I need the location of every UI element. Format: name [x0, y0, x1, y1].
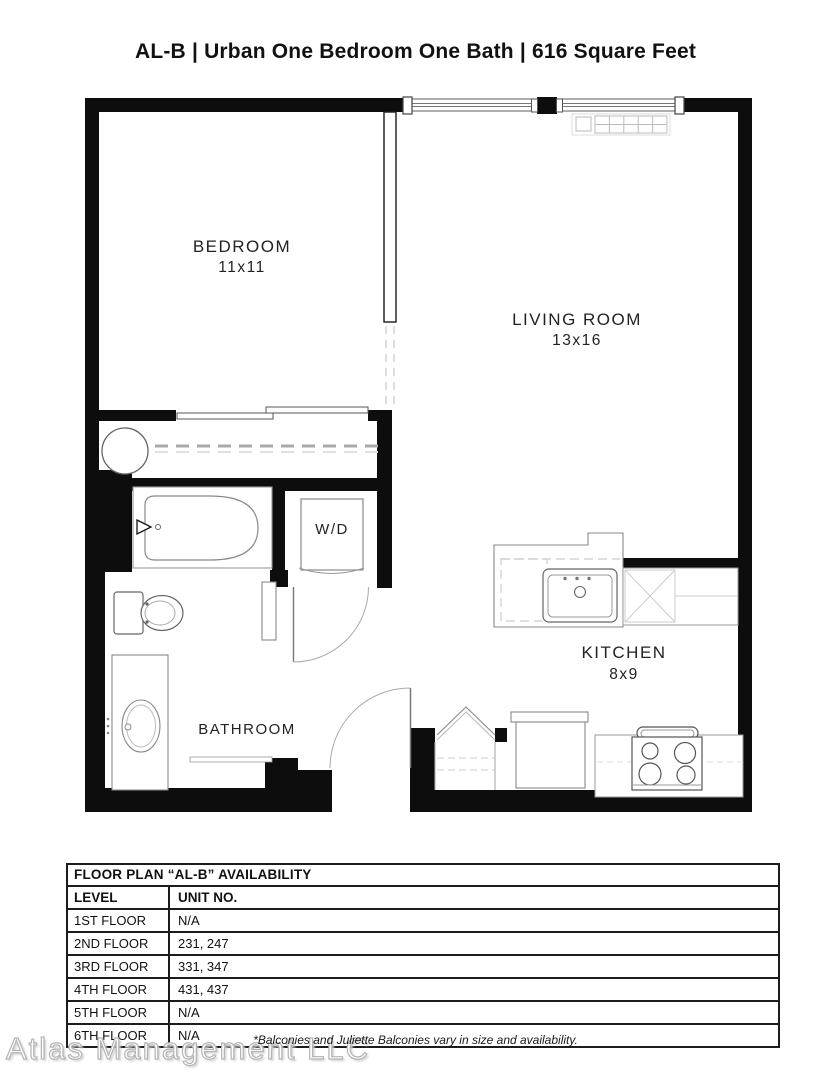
- units-cell: 231, 247: [170, 933, 778, 954]
- washer-dryer: W/D: [294, 499, 369, 662]
- door-swing-arc: [294, 587, 369, 662]
- living-room-label: LIVING ROOM: [512, 310, 642, 329]
- units-cell: 431, 437: [170, 979, 778, 1000]
- floor-plan-page: AL-B | Urban One Bedroom One Bath | 616 …: [0, 0, 831, 1080]
- table-row: 3RD FLOOR 331, 347: [68, 956, 778, 979]
- kitchen-dims: 8x9: [609, 666, 639, 683]
- level-cell: 1ST FLOOR: [68, 910, 170, 931]
- table-row: 2ND FLOOR 231, 247: [68, 933, 778, 956]
- washer-dryer-label: W/D: [315, 521, 349, 538]
- sliding-door: [266, 407, 368, 413]
- door-swing-arc: [330, 688, 410, 768]
- bedroom-partition: [384, 112, 396, 408]
- bathtub-icon: [133, 487, 272, 568]
- baseboard-heater-icon: [572, 114, 670, 135]
- refrigerator-icon: [511, 712, 588, 788]
- column-header-unit-no: UNIT NO.: [170, 887, 778, 908]
- column-header-level: LEVEL: [68, 887, 170, 908]
- stove-icon: [632, 727, 702, 790]
- bathroom-label: BATHROOM: [198, 721, 296, 738]
- table-row: 4TH FLOOR 431, 437: [68, 979, 778, 1002]
- bathroom-fixtures: [107, 582, 276, 790]
- window: [403, 97, 684, 114]
- availability-table: FLOOR PLAN “AL-B” AVAILABILITY LEVEL UNI…: [66, 863, 780, 1048]
- water-heater-icon: [102, 428, 148, 474]
- walls: [85, 98, 752, 812]
- bathroom-sink-icon: [107, 655, 168, 790]
- units-cell: N/A: [170, 1002, 778, 1023]
- level-cell: 4TH FLOOR: [68, 979, 170, 1000]
- level-cell: 5TH FLOOR: [68, 1002, 170, 1023]
- threshold: [190, 757, 272, 762]
- toilet-icon: [114, 592, 183, 634]
- balcony-footnote: *Balconies and Juliette Balconies vary i…: [0, 1033, 831, 1047]
- level-cell: 2ND FLOOR: [68, 933, 170, 954]
- kitchen-sink-icon: [543, 569, 617, 622]
- window-mullion: [537, 97, 557, 114]
- kitchen-label: KITCHEN: [581, 643, 666, 662]
- entry-door: [330, 688, 411, 768]
- units-cell: 331, 347: [170, 956, 778, 977]
- table-row: 5TH FLOOR N/A: [68, 1002, 778, 1025]
- level-cell: 3RD FLOOR: [68, 956, 170, 977]
- living-room-dims: 13x16: [552, 332, 602, 349]
- pocket-door: [262, 582, 276, 640]
- units-cell: N/A: [170, 910, 778, 931]
- bedroom-dims: 11x11: [218, 259, 265, 276]
- table-title: FLOOR PLAN “AL-B” AVAILABILITY: [68, 865, 778, 887]
- table-row: 1ST FLOOR N/A: [68, 910, 778, 933]
- pantry: [435, 707, 495, 790]
- kitchen-fixtures: [435, 533, 743, 797]
- sliding-door: [177, 413, 273, 419]
- table-header-row: LEVEL UNIT NO.: [68, 887, 778, 910]
- bedroom-label: BEDROOM: [193, 237, 291, 256]
